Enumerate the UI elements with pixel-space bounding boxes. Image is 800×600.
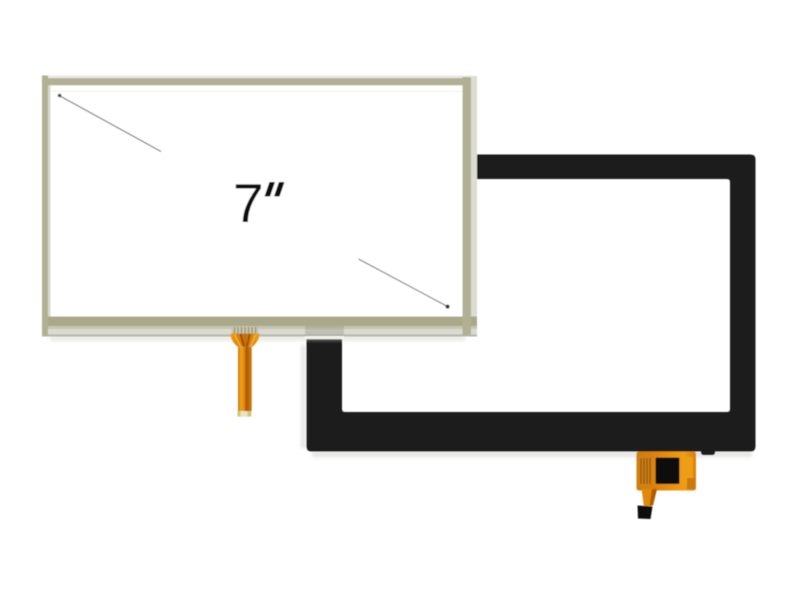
svg-text:7: 7 (233, 172, 264, 234)
